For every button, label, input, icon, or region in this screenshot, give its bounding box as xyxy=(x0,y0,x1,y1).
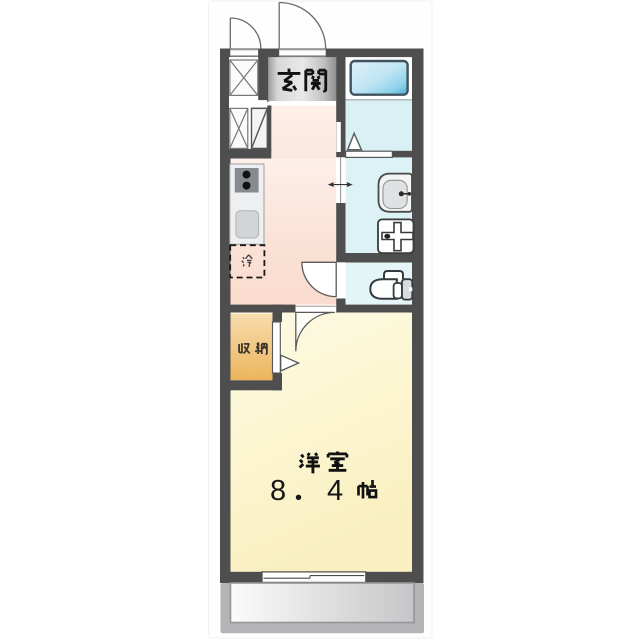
svg-text:8: 8 xyxy=(270,475,286,507)
svg-text:4: 4 xyxy=(327,475,343,507)
